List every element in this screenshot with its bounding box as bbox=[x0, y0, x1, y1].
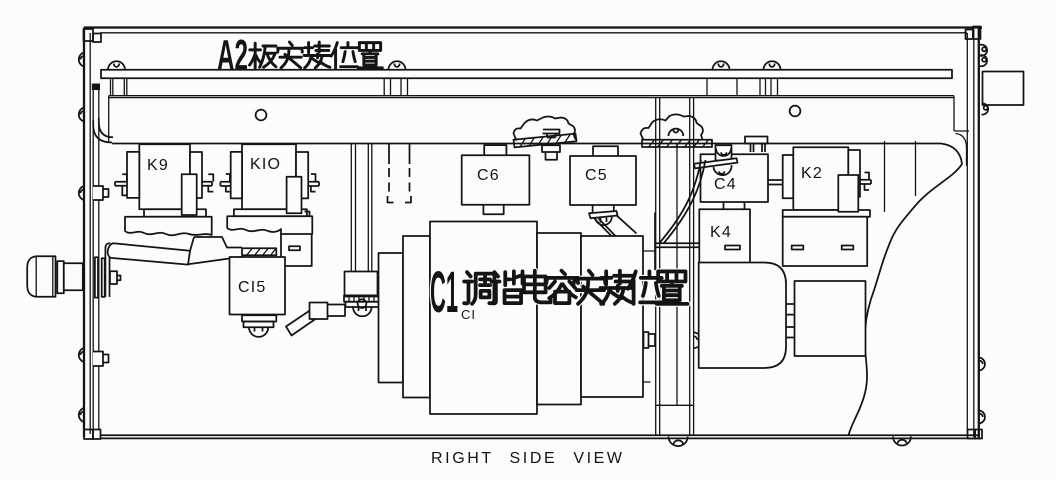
svg-text:CI5: CI5 bbox=[238, 279, 267, 296]
svg-text:A2: A2 bbox=[217, 31, 248, 80]
svg-text:C5: C5 bbox=[585, 167, 608, 184]
svg-text:C1: C1 bbox=[430, 260, 458, 325]
svg-text:K2: K2 bbox=[801, 165, 823, 182]
svg-text:C4: C4 bbox=[714, 176, 737, 193]
svg-text:KIO: KIO bbox=[250, 156, 281, 173]
svg-text:K9: K9 bbox=[147, 157, 169, 174]
svg-text:C6: C6 bbox=[477, 167, 500, 184]
svg-text:CI: CI bbox=[461, 307, 476, 322]
svg-text:K4: K4 bbox=[710, 224, 732, 241]
svg-text:RIGHT SIDE VIEW: RIGHT SIDE VIEW bbox=[431, 450, 625, 467]
